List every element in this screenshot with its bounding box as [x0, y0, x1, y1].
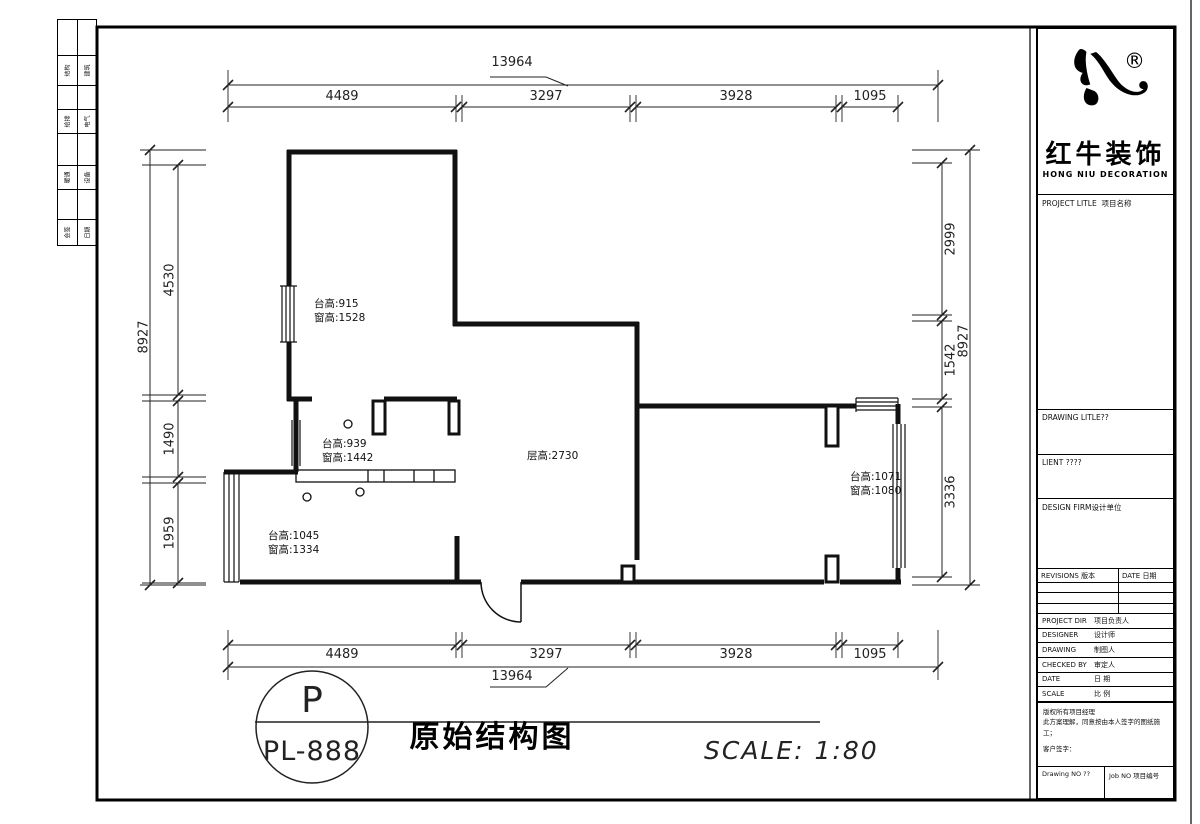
- strip-cell: [77, 85, 98, 110]
- strip-cell: 暖通: [57, 165, 78, 190]
- staff-row-checked-by: CHECKED BY 审定人: [1038, 658, 1173, 673]
- staff-row-drawing: DRAWING 制图人: [1038, 643, 1173, 658]
- brand-subtitle: HONG NIU DECORATION: [1038, 170, 1173, 179]
- label-cn: 审定人: [1094, 660, 1115, 670]
- annotation-line: 窗高:1080: [850, 484, 901, 498]
- walls: [224, 150, 901, 584]
- design-firm-section: DESIGN FIRM设计单位: [1038, 499, 1173, 569]
- label-en: SCALE: [1042, 690, 1094, 698]
- revisions-header: REVISIONS 版本 DATE 日期: [1038, 569, 1173, 583]
- strip-row-empty: [58, 20, 97, 56]
- revisions-empty-row: [1038, 604, 1173, 613]
- stamp-letter: P: [301, 680, 323, 721]
- dim-right-seg-1: 2999: [945, 222, 958, 255]
- staff-row-project-dir: PROJECT DIR 项目负责人: [1038, 614, 1173, 629]
- strip-cell: [77, 19, 98, 56]
- dim-left-seg-3: 1959: [164, 516, 177, 549]
- job-no-cell: Job NO 项目编号: [1105, 767, 1163, 800]
- dim-right-seg-3: 3336: [945, 475, 958, 508]
- dim-top-overall: 13964: [491, 56, 532, 69]
- door-swing: [481, 582, 521, 622]
- strip-cell: [57, 133, 78, 166]
- dim-left-seg-2: 1490: [164, 422, 177, 455]
- annotation-line: 窗高:1442: [322, 451, 373, 465]
- annotation-window-3: 台高:1045 窗高:1334: [268, 529, 319, 557]
- note-line: 此方案理解，同意按由本人签字的图纸施工；: [1043, 717, 1168, 738]
- strip-row-empty: [58, 86, 97, 110]
- label-en: CHECKED BY: [1042, 661, 1094, 669]
- strip-row: 给排 电气: [58, 110, 97, 134]
- design-firm-label: DESIGN FIRM设计单位: [1038, 499, 1173, 513]
- annotation-line: 台高:915: [314, 297, 365, 311]
- signature-strip: 结构 建筑 给排 电气 暖通 设备 会签 日期: [58, 20, 97, 246]
- label-en: DATE: [1122, 572, 1140, 580]
- dim-bottom-seg-1: 4489: [325, 648, 358, 661]
- label-cn: 版本: [1081, 572, 1095, 580]
- brand-section: ® 红牛装饰 HONG NIU DECORATION: [1038, 29, 1173, 195]
- annotation-line: 台高:1045: [268, 529, 319, 543]
- strip-cell: [77, 133, 98, 166]
- label-cn: 项目负责人: [1094, 616, 1129, 626]
- label-en: DATE: [1042, 675, 1094, 683]
- label-en: PROJECT DIR: [1042, 617, 1094, 625]
- brand-name: 红牛装饰: [1038, 134, 1173, 171]
- stamp-code: PL-888: [263, 736, 361, 767]
- strip-label: 会签: [63, 226, 72, 238]
- label-cn: 制图人: [1094, 645, 1115, 655]
- scale-label: SCALE: 1:80: [704, 736, 879, 765]
- annotation-line: 台高:939: [322, 437, 373, 451]
- annotation-line: 层高:2730: [527, 449, 578, 463]
- strip-cell: 给排: [57, 109, 78, 134]
- dimension-lines: [140, 70, 980, 687]
- label-en: LIENT ????: [1042, 458, 1082, 467]
- client-label: LIENT ????: [1038, 455, 1173, 467]
- label-en: REVISIONS: [1041, 572, 1079, 580]
- revisions-empty-row: [1038, 593, 1173, 603]
- strip-cell: 设备: [77, 165, 98, 190]
- staff-row-scale: SCALE 比 例: [1038, 687, 1173, 702]
- annotation-window-4: 台高:1071 窗高:1080: [850, 470, 901, 498]
- strip-label: 给排: [63, 115, 72, 127]
- registered-mark: ®: [1124, 49, 1145, 73]
- strip-cell: 建筑: [77, 55, 98, 86]
- drawing-title: 原始结构图: [410, 712, 575, 756]
- rev-cell: [1038, 604, 1119, 613]
- label-cn: 设计单位: [1092, 503, 1122, 512]
- rev-cell: [1119, 583, 1173, 592]
- dim-top-seg-2: 3297: [529, 90, 562, 103]
- annotation-line: 窗高:1334: [268, 543, 319, 557]
- label-cn: 项目名称: [1101, 199, 1131, 208]
- strip-row: 会签 日期: [58, 220, 97, 246]
- label-en: DESIGNER: [1042, 631, 1094, 639]
- drawing-title-label: DRAWING LITLE??: [1038, 410, 1173, 422]
- strip-row-empty: [58, 134, 97, 166]
- drawing-sheet: 13964 4489 3297 3928 1095 4489 3297 3928…: [0, 0, 1200, 824]
- dim-top-seg-1: 4489: [325, 90, 358, 103]
- rev-cell: [1038, 593, 1119, 602]
- strip-label: 电气: [82, 115, 91, 127]
- drawing-no-cell: Drawing NO ??: [1038, 767, 1105, 800]
- rev-cell: [1038, 583, 1119, 592]
- revisions-table: REVISIONS 版本 DATE 日期: [1038, 569, 1173, 614]
- annotation-line: 台高:1071: [850, 470, 901, 484]
- label-cn: 设计师: [1094, 630, 1115, 640]
- strip-cell: 会签: [57, 219, 78, 246]
- floorplan-canvas: [0, 0, 1200, 824]
- label-cn: 日 期: [1094, 674, 1110, 684]
- label-en: DRAWING: [1042, 646, 1094, 654]
- rev-cell: [1119, 604, 1173, 613]
- staff-section: PROJECT DIR 项目负责人 DESIGNER 设计师 DRAWING 制…: [1038, 614, 1173, 702]
- sheet-frame: [97, 0, 1191, 824]
- label-en: DESIGN FIRM: [1042, 503, 1092, 512]
- label-en: PROJECT LITLE: [1042, 199, 1097, 208]
- window-symbols: [224, 286, 905, 582]
- label-cn: 比 例: [1094, 689, 1110, 699]
- strip-label: 暖通: [63, 171, 72, 183]
- dim-bottom-seg-4: 1095: [853, 648, 886, 661]
- drawing-title-section: DRAWING LITLE??: [1038, 410, 1173, 455]
- strip-cell: 日期: [77, 219, 98, 246]
- revisions-col-label: REVISIONS 版本: [1038, 569, 1119, 582]
- strip-cell: [77, 189, 98, 220]
- dim-left-overall: 8927: [138, 320, 151, 353]
- label-cn: 日期: [1142, 572, 1156, 580]
- date-col-label: DATE 日期: [1119, 569, 1173, 582]
- annotation-line: 窗高:1528: [314, 311, 365, 325]
- dim-bottom-overall: 13964: [491, 670, 532, 683]
- annotation-window-2: 台高:939 窗高:1442: [322, 437, 373, 465]
- client-signature-label: 客户签字：: [1043, 744, 1168, 754]
- project-title-section: PROJECT LITLE 项目名称: [1038, 195, 1173, 410]
- strip-cell: [57, 189, 78, 220]
- staff-row-date: DATE 日 期: [1038, 673, 1173, 688]
- strip-label: 建筑: [82, 64, 91, 76]
- client-section: LIENT ????: [1038, 455, 1173, 499]
- dim-right-overall: 8927: [958, 324, 971, 357]
- note-line: 版权所有项目经理: [1043, 707, 1168, 717]
- strip-cell: 结构: [57, 55, 78, 86]
- label-en: DRAWING LITLE??: [1042, 413, 1109, 422]
- strip-cell: [57, 85, 78, 110]
- strip-label: 日期: [82, 226, 91, 238]
- rev-cell: [1119, 593, 1173, 602]
- dim-bottom-seg-2: 3297: [529, 648, 562, 661]
- strip-row-empty: [58, 190, 97, 220]
- annotation-window-1: 台高:915 窗高:1528: [314, 297, 365, 325]
- copyright-notes: 版权所有项目经理 此方案理解，同意按由本人签字的图纸施工； 客户签字：: [1038, 703, 1173, 759]
- strip-row: 暖通 设备: [58, 166, 97, 190]
- number-section: Drawing NO ?? Job NO 项目编号: [1038, 767, 1173, 800]
- revisions-empty-row: [1038, 583, 1173, 593]
- annotation-ceiling-height: 层高:2730: [527, 449, 578, 463]
- strip-label: 结构: [63, 64, 72, 76]
- project-title-label: PROJECT LITLE 项目名称: [1038, 195, 1173, 209]
- staff-row-designer: DESIGNER 设计师: [1038, 629, 1173, 644]
- strip-cell: [57, 19, 78, 56]
- dim-left-seg-1: 4530: [164, 263, 177, 296]
- strip-row: 结构 建筑: [58, 56, 97, 86]
- strip-label: 设备: [82, 171, 91, 183]
- strip-cell: 电气: [77, 109, 98, 134]
- notes-section: 版权所有项目经理 此方案理解，同意按由本人签字的图纸施工； 客户签字：: [1038, 702, 1173, 767]
- columns: [373, 401, 838, 582]
- dim-bottom-seg-3: 3928: [719, 648, 752, 661]
- title-block: ® 红牛装饰 HONG NIU DECORATION PROJECT LITLE…: [1036, 27, 1175, 800]
- dim-top-seg-3: 3928: [719, 90, 752, 103]
- dim-top-seg-4: 1095: [853, 90, 886, 103]
